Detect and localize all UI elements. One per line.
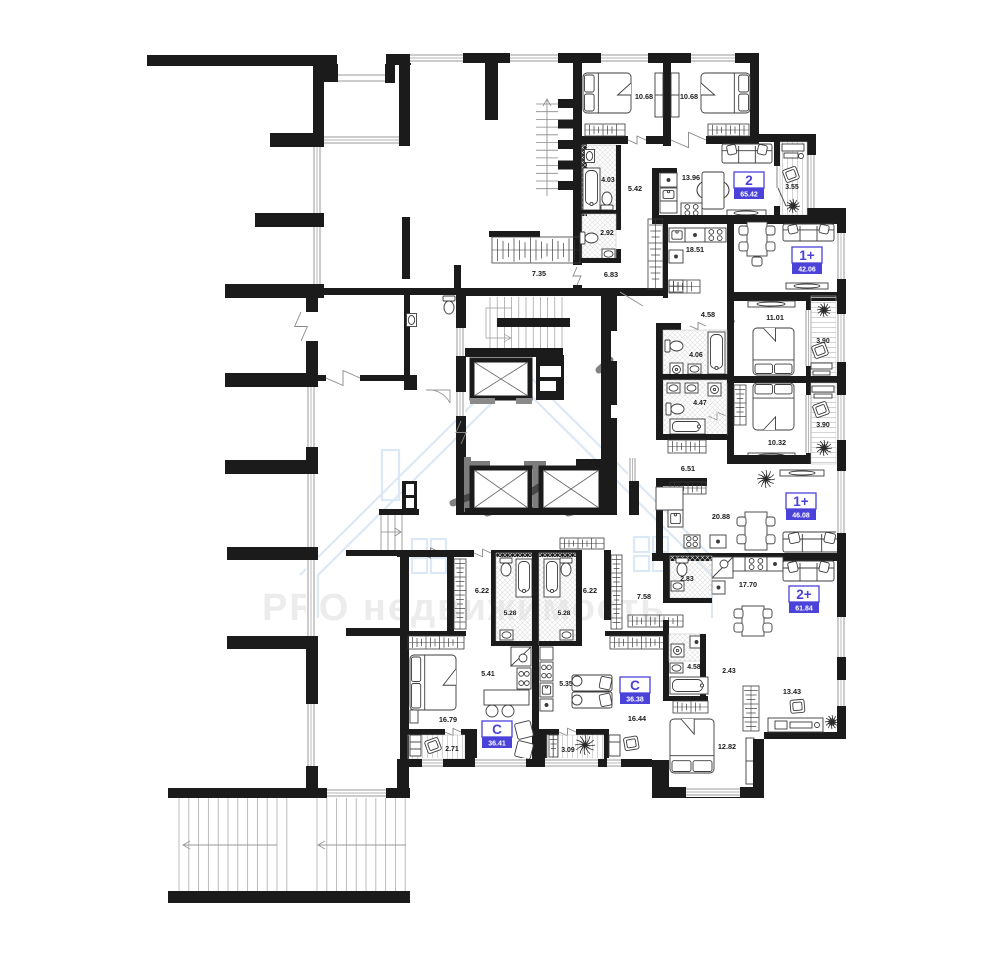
svg-text:3.90: 3.90 (816, 422, 830, 429)
svg-text:3.90: 3.90 (816, 338, 830, 345)
svg-text:1+: 1+ (793, 494, 809, 509)
svg-text:10.68: 10.68 (680, 92, 698, 101)
svg-text:5.35: 5.35 (559, 681, 573, 688)
svg-text:7.35: 7.35 (532, 269, 546, 278)
svg-text:4.58: 4.58 (687, 664, 701, 671)
svg-text:18.51: 18.51 (686, 245, 704, 254)
svg-text:61.84: 61.84 (795, 606, 813, 613)
svg-text:65.42: 65.42 (740, 192, 758, 199)
svg-text:2.83: 2.83 (680, 576, 694, 583)
svg-text:11.01: 11.01 (766, 313, 784, 322)
svg-text:10.68: 10.68 (635, 92, 653, 101)
svg-text:16.44: 16.44 (628, 714, 647, 723)
svg-text:6.22: 6.22 (475, 586, 489, 595)
svg-text:5.28: 5.28 (558, 610, 571, 617)
svg-text:13.96: 13.96 (682, 173, 700, 182)
svg-text:42.06: 42.06 (798, 267, 816, 274)
svg-text:2: 2 (745, 173, 753, 188)
svg-text:12.82: 12.82 (718, 742, 736, 751)
svg-text:20.88: 20.88 (712, 512, 730, 521)
svg-text:6.51: 6.51 (681, 464, 695, 473)
svg-text:3.55: 3.55 (785, 184, 799, 191)
svg-text:36.38: 36.38 (626, 697, 644, 704)
svg-text:5.28: 5.28 (504, 610, 517, 617)
svg-text:13.43: 13.43 (783, 687, 801, 696)
svg-text:2.92: 2.92 (600, 230, 614, 237)
svg-text:4.58: 4.58 (701, 310, 715, 319)
svg-text:5.42: 5.42 (628, 184, 642, 193)
svg-text:C: C (492, 722, 502, 737)
svg-text:3.09: 3.09 (561, 747, 575, 754)
svg-text:16.79: 16.79 (439, 715, 457, 724)
svg-text:4.47: 4.47 (693, 400, 707, 407)
svg-text:6.22: 6.22 (583, 586, 597, 595)
svg-text:7.58: 7.58 (637, 592, 651, 601)
svg-text:2+: 2+ (796, 587, 812, 602)
svg-text:10.32: 10.32 (768, 438, 786, 447)
svg-text:C: C (630, 678, 640, 693)
svg-text:1+: 1+ (799, 248, 815, 263)
svg-text:36.41: 36.41 (488, 741, 506, 748)
svg-text:17.70: 17.70 (739, 580, 757, 589)
svg-text:46.08: 46.08 (792, 513, 810, 520)
svg-text:4.06: 4.06 (689, 352, 703, 359)
svg-text:5.41: 5.41 (481, 671, 495, 678)
svg-text:4.03: 4.03 (601, 177, 615, 184)
svg-text:2.43: 2.43 (722, 668, 736, 675)
svg-text:6.83: 6.83 (604, 270, 618, 279)
svg-text:2.71: 2.71 (445, 746, 459, 753)
